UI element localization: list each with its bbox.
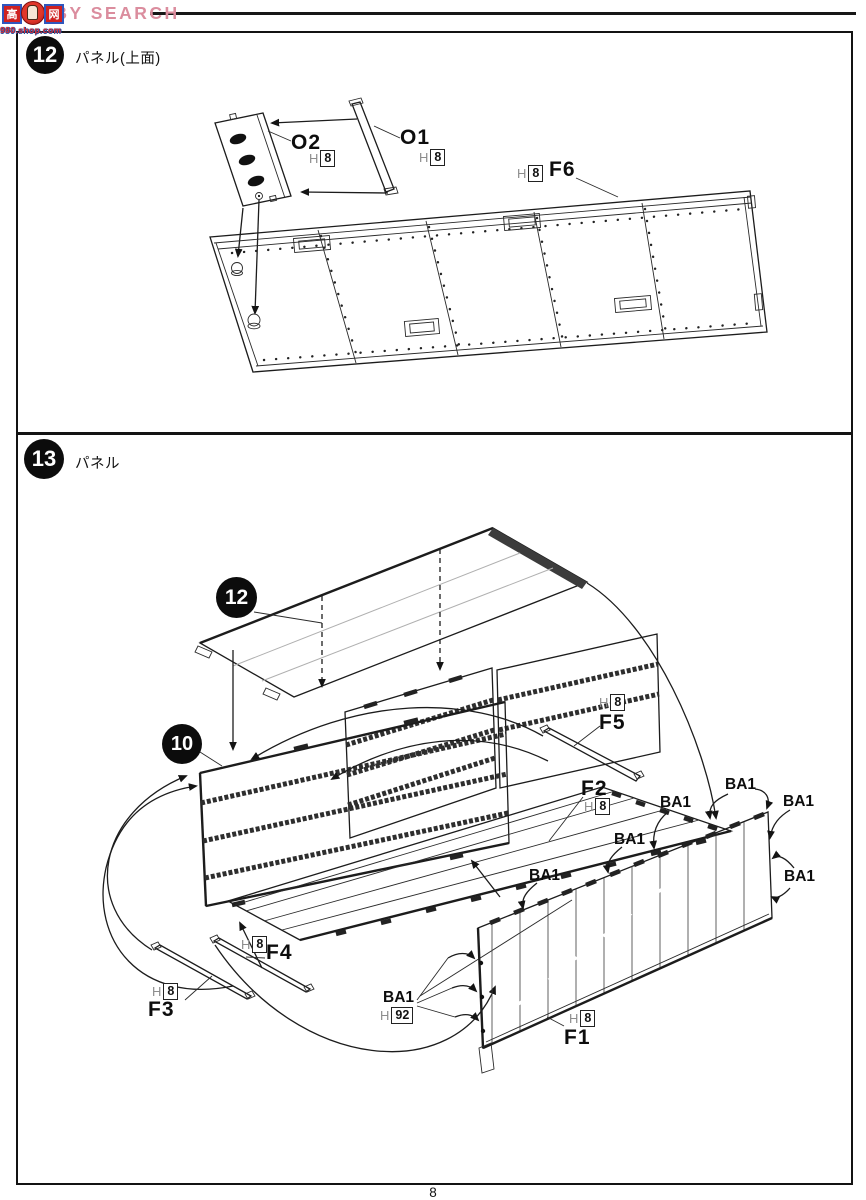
- watermark-url-text: 980.shop.com: [0, 25, 62, 35]
- runner-number: 8: [580, 1010, 595, 1027]
- runner-number: 8: [610, 694, 625, 711]
- step12-frame: [16, 31, 853, 434]
- runner-grade: H: [569, 1011, 578, 1026]
- step12-title: パネル(上面): [75, 47, 161, 68]
- runner-grade: H: [380, 1008, 389, 1023]
- logo-left-square: 高: [2, 4, 22, 24]
- part-label-f3: F3: [148, 998, 175, 1022]
- part-label-o1: O1: [400, 126, 430, 150]
- header-rule: [150, 12, 856, 15]
- runner-marker-f2: H 8: [584, 798, 610, 815]
- part-label-ba1: BA1: [529, 867, 560, 885]
- runner-marker-o1: H 8: [419, 149, 445, 166]
- watermark-logo: 高 网 980.shop.com: [0, 0, 66, 38]
- part-label-ba1: BA1: [783, 793, 814, 811]
- runner-number: 8: [595, 798, 610, 815]
- runner-number: 8: [528, 165, 543, 182]
- runner-marker-f4: H 8: [241, 936, 267, 953]
- part-label-f5: F5: [599, 711, 626, 735]
- part-label-f1: F1: [564, 1026, 591, 1050]
- runner-marker-ba1: H 92: [380, 1007, 413, 1024]
- part-label-ba1: BA1: [614, 831, 645, 849]
- part-label-ba1: BA1: [660, 794, 691, 812]
- runner-marker-f6: H 8: [517, 165, 543, 182]
- thumb-icon: [27, 5, 38, 20]
- runner-grade: H: [517, 166, 526, 181]
- step13-number-badge: 13: [24, 439, 64, 479]
- step12-number-badge: 12: [26, 36, 64, 74]
- part-label-ba1: BA1: [784, 868, 815, 886]
- callout-subassembly-10: 10: [162, 724, 202, 764]
- runner-number: 8: [430, 149, 445, 166]
- step13-title: パネル: [75, 452, 120, 473]
- page-number: 8: [0, 1185, 866, 1200]
- runner-grade: H: [419, 150, 428, 165]
- runner-marker-o2: H 8: [309, 150, 335, 167]
- runner-grade: H: [599, 695, 608, 710]
- runner-number: 8: [320, 150, 335, 167]
- step13-frame: [16, 433, 853, 1185]
- runner-number: 92: [391, 1007, 413, 1024]
- callout-subassembly-12: 12: [216, 577, 257, 618]
- runner-marker-f5: H 8: [599, 694, 625, 711]
- runner-grade: H: [152, 984, 161, 999]
- part-label-f6: F6: [549, 158, 576, 182]
- runner-marker-f1: H 8: [569, 1010, 595, 1027]
- part-label-f4: F4: [266, 941, 293, 965]
- part-label-ba1: BA1: [383, 989, 414, 1007]
- runner-grade: H: [584, 799, 593, 814]
- runner-grade: H: [241, 937, 250, 952]
- part-label-ba1: BA1: [725, 776, 756, 794]
- instruction-sheet-page: HOBBY SEARCH 高 网 980.shop.com 12 パネル(上面)…: [0, 0, 866, 1200]
- runner-grade: H: [309, 151, 318, 166]
- logo-right-square: 网: [44, 4, 64, 24]
